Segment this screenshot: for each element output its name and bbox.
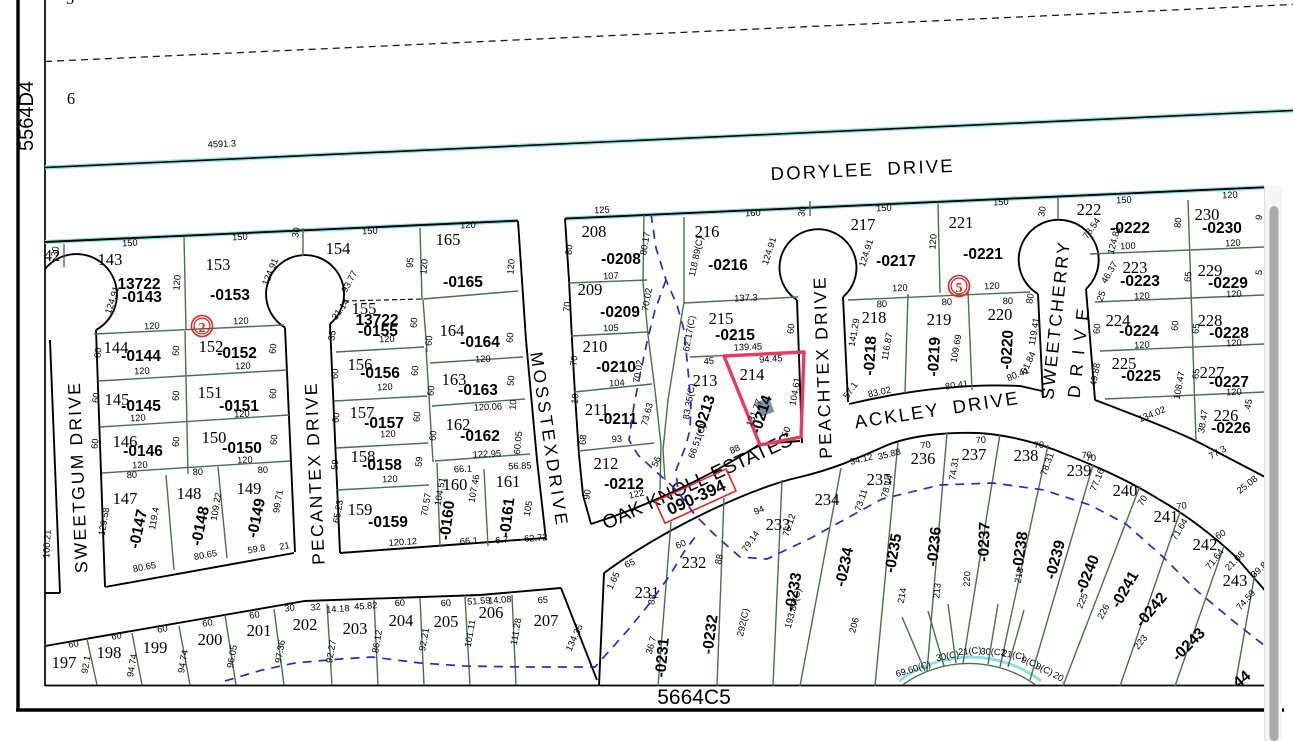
svg-text:60: 60	[409, 317, 420, 328]
svg-text:209: 209	[578, 280, 603, 299]
svg-text:120.12: 120.12	[388, 536, 417, 548]
svg-text:120: 120	[377, 382, 393, 393]
svg-text:5564D4: 5564D4	[16, 81, 38, 151]
svg-text:120: 120	[134, 366, 150, 377]
svg-text:210: 210	[583, 337, 608, 356]
svg-text:80: 80	[876, 299, 887, 309]
svg-text:100: 100	[1120, 241, 1136, 252]
svg-text:-0216: -0216	[708, 257, 748, 274]
svg-text:-0209: -0209	[600, 304, 640, 321]
svg-text:60: 60	[269, 434, 280, 445]
svg-text:120: 120	[144, 321, 160, 332]
svg-text:60: 60	[157, 623, 169, 635]
svg-text:4591.3: 4591.3	[207, 138, 236, 149]
svg-text:-0152: -0152	[217, 345, 257, 362]
svg-text:120: 120	[380, 429, 396, 440]
svg-text:104: 104	[609, 378, 625, 389]
svg-text:218: 218	[862, 308, 887, 327]
svg-text:60: 60	[1092, 323, 1103, 334]
svg-text:70: 70	[975, 435, 986, 446]
svg-text:-0221: -0221	[963, 246, 1003, 263]
svg-text:120: 120	[1225, 238, 1241, 249]
svg-text:10: 10	[570, 393, 581, 404]
svg-text:125: 125	[594, 205, 610, 216]
svg-text:232: 232	[682, 553, 707, 572]
svg-text:90: 90	[581, 489, 593, 501]
svg-text:207: 207	[534, 611, 559, 630]
svg-text:60: 60	[111, 630, 123, 642]
svg-text:234: 234	[815, 490, 840, 509]
svg-text:-0208: -0208	[601, 251, 641, 268]
svg-text:201: 201	[247, 621, 272, 640]
svg-text:241: 241	[1154, 507, 1179, 526]
svg-text:95: 95	[405, 257, 416, 268]
svg-text:206: 206	[479, 603, 504, 622]
svg-text:120: 120	[418, 259, 429, 275]
svg-text:-0146: -0146	[123, 443, 163, 460]
svg-text:120: 120	[505, 259, 516, 275]
svg-text:221: 221	[949, 213, 974, 232]
svg-text:214: 214	[740, 365, 765, 384]
svg-text:220: 220	[962, 571, 973, 587]
svg-text:5: 5	[956, 281, 963, 296]
svg-text:65: 65	[1191, 368, 1202, 379]
svg-text:68: 68	[578, 434, 589, 445]
svg-text:80: 80	[126, 470, 137, 480]
svg-text:-0158: -0158	[362, 457, 402, 474]
svg-text:30: 30	[290, 227, 302, 239]
svg-text:204: 204	[389, 611, 414, 630]
svg-text:30: 30	[796, 206, 808, 218]
svg-text:120: 120	[171, 275, 182, 291]
svg-text:30: 30	[284, 602, 296, 613]
svg-text:147: 147	[113, 489, 138, 508]
svg-text:-0223: -0223	[1120, 273, 1160, 290]
svg-text:120: 120	[1226, 289, 1242, 300]
svg-text:60: 60	[68, 638, 80, 650]
svg-text:30: 30	[1036, 206, 1048, 218]
svg-text:213: 213	[931, 582, 943, 598]
svg-text:148: 148	[177, 484, 202, 503]
svg-text:62.72: 62.72	[524, 532, 548, 544]
svg-text:197: 197	[52, 653, 77, 672]
svg-text:70: 70	[920, 439, 932, 450]
svg-text:65: 65	[1183, 271, 1194, 282]
svg-text:212: 212	[594, 454, 619, 473]
svg-text:120: 120	[460, 220, 476, 231]
svg-text:93: 93	[611, 434, 622, 444]
svg-text:-0159: -0159	[368, 514, 408, 531]
svg-text:236: 236	[911, 449, 936, 468]
svg-text:237: 237	[962, 445, 987, 464]
svg-text:100.21: 100.21	[41, 529, 52, 558]
svg-text:30: 30	[49, 246, 61, 258]
svg-text:161: 161	[496, 472, 521, 491]
svg-text:120: 120	[382, 474, 398, 485]
svg-text:6: 6	[67, 89, 75, 108]
svg-text:-0220: -0220	[998, 330, 1017, 370]
svg-text:70: 70	[1081, 450, 1092, 461]
svg-text:70: 70	[1034, 440, 1045, 450]
svg-text:60: 60	[93, 347, 104, 358]
svg-text:5664C5: 5664C5	[657, 686, 731, 709]
svg-text:60: 60	[394, 598, 405, 609]
svg-text:60: 60	[90, 438, 101, 449]
svg-text:60: 60	[786, 323, 797, 334]
svg-text:70: 70	[569, 355, 580, 366]
svg-text:149: 149	[237, 479, 262, 498]
svg-text:2: 2	[199, 321, 206, 336]
svg-text:120: 120	[237, 455, 253, 466]
svg-text:150: 150	[876, 203, 892, 214]
svg-text:60: 60	[268, 388, 279, 399]
svg-text:60: 60	[268, 343, 279, 354]
svg-text:60: 60	[171, 345, 182, 356]
svg-text:-0156: -0156	[360, 365, 400, 382]
svg-text:239: 239	[1067, 461, 1092, 480]
svg-text:80: 80	[257, 465, 268, 475]
svg-text:66.1: 66.1	[459, 535, 478, 546]
svg-text:60: 60	[330, 368, 341, 379]
svg-text:59: 59	[414, 456, 425, 467]
svg-text:80: 80	[1002, 296, 1013, 306]
svg-text:60: 60	[428, 430, 439, 441]
svg-text:-0210: -0210	[596, 359, 636, 376]
svg-text:120: 120	[927, 234, 938, 250]
svg-text:65: 65	[1191, 323, 1202, 334]
svg-text:-0230: -0230	[1202, 220, 1242, 237]
svg-text:160: 160	[745, 208, 761, 219]
svg-text:-0224: -0224	[1119, 323, 1159, 340]
svg-text:205: 205	[434, 612, 459, 631]
svg-text:-0144: -0144	[121, 348, 161, 365]
svg-text:-0162: -0162	[460, 428, 500, 445]
svg-text:-0217: -0217	[876, 253, 916, 270]
svg-text:120: 120	[984, 281, 1000, 292]
svg-text:150: 150	[362, 226, 378, 237]
svg-text:105: 105	[603, 323, 619, 334]
svg-text:14.08: 14.08	[488, 594, 512, 606]
svg-text:45: 45	[703, 356, 714, 367]
svg-text:120: 120	[475, 354, 491, 365]
svg-text:50: 50	[506, 375, 517, 386]
svg-text:219: 219	[927, 310, 952, 329]
svg-text:60: 60	[171, 390, 182, 401]
svg-text:80: 80	[941, 297, 952, 307]
svg-text:220: 220	[988, 305, 1013, 324]
svg-text:120: 120	[132, 460, 148, 471]
svg-text:-0225: -0225	[1121, 368, 1161, 385]
svg-text:120: 120	[1134, 340, 1150, 351]
svg-text:60: 60	[426, 385, 437, 396]
svg-text:60: 60	[440, 598, 451, 609]
svg-text:32: 32	[310, 601, 322, 612]
svg-text:70: 70	[562, 301, 573, 312]
svg-text:150: 150	[993, 197, 1009, 208]
svg-text:150: 150	[1116, 195, 1132, 206]
svg-text:80: 80	[1173, 217, 1184, 228]
svg-text:80: 80	[1024, 293, 1036, 305]
svg-text:10: 10	[508, 399, 519, 410]
svg-text:60: 60	[412, 411, 423, 422]
svg-text:60: 60	[424, 335, 435, 346]
svg-text:60: 60	[410, 365, 421, 376]
svg-text:217: 217	[851, 215, 876, 234]
svg-text:240: 240	[1113, 481, 1138, 500]
svg-text:120.06: 120.06	[473, 401, 502, 412]
svg-text:222: 222	[1077, 200, 1102, 219]
svg-text:-0226: -0226	[1211, 420, 1251, 437]
svg-text:137.3: 137.3	[734, 292, 758, 303]
svg-text:6.7: 6.7	[495, 535, 509, 546]
svg-text:243: 243	[1223, 571, 1248, 590]
svg-text:60: 60	[171, 436, 182, 447]
svg-text:80: 80	[564, 244, 575, 255]
svg-text:165: 165	[436, 230, 461, 249]
svg-text:60: 60	[1170, 320, 1181, 331]
svg-text:107: 107	[603, 271, 619, 282]
svg-text:-0153: -0153	[210, 287, 250, 304]
svg-text:202: 202	[293, 615, 318, 634]
svg-text:198: 198	[97, 643, 122, 662]
svg-text:60: 60	[249, 609, 261, 621]
svg-text:-0165: -0165	[443, 274, 483, 291]
svg-text:45.82: 45.82	[354, 600, 378, 612]
svg-text:80: 80	[192, 467, 203, 477]
svg-text:88: 88	[713, 553, 725, 565]
svg-text:21(C): 21(C)	[958, 645, 982, 657]
svg-text:200: 200	[198, 630, 223, 649]
svg-text:21: 21	[279, 540, 291, 552]
svg-text:-0164: -0164	[460, 334, 500, 351]
svg-text:150: 150	[122, 238, 138, 249]
svg-text:139.45: 139.45	[733, 341, 762, 352]
svg-text:-0219: -0219	[925, 336, 944, 377]
svg-text:-0143: -0143	[122, 289, 162, 306]
svg-text:122.95: 122.95	[472, 448, 501, 459]
svg-text:60: 60	[331, 412, 342, 423]
svg-text:120: 120	[1226, 387, 1242, 398]
svg-text:154: 154	[326, 239, 351, 258]
svg-text:60.05: 60.05	[512, 431, 524, 455]
svg-text:120: 120	[1134, 291, 1150, 302]
svg-text:120: 120	[130, 413, 146, 424]
svg-text:203: 203	[343, 619, 368, 638]
svg-text:120: 120	[892, 283, 908, 294]
svg-text:70: 70	[1176, 500, 1188, 511]
svg-text:65: 65	[537, 595, 548, 606]
svg-text:-0218: -0218	[861, 335, 880, 376]
svg-text:-0163: -0163	[458, 382, 498, 399]
svg-text:120: 120	[233, 316, 249, 327]
svg-text:56.85: 56.85	[508, 460, 532, 471]
svg-text:59: 59	[330, 459, 341, 470]
svg-text:-0237: -0237	[975, 522, 993, 562]
svg-text:150: 150	[232, 232, 248, 243]
svg-text:60: 60	[505, 332, 516, 343]
svg-text:120: 120	[234, 409, 250, 420]
svg-text:120: 120	[379, 334, 395, 345]
svg-text:120: 120	[1222, 190, 1238, 201]
svg-text:60: 60	[202, 617, 214, 629]
svg-text:215: 215	[709, 309, 734, 328]
svg-text:208: 208	[582, 222, 607, 241]
svg-text:35: 35	[326, 330, 338, 342]
svg-text:14.18: 14.18	[326, 603, 350, 615]
svg-text:199: 199	[143, 638, 168, 657]
svg-text:153: 153	[206, 255, 231, 274]
svg-text:5: 5	[66, 0, 74, 8]
svg-text:120: 120	[1226, 338, 1242, 349]
svg-text:94.45: 94.45	[759, 353, 783, 365]
svg-text:120: 120	[235, 361, 251, 372]
svg-text:143: 143	[98, 250, 123, 269]
svg-text:66.1: 66.1	[454, 464, 473, 475]
svg-text:60: 60	[91, 392, 102, 403]
